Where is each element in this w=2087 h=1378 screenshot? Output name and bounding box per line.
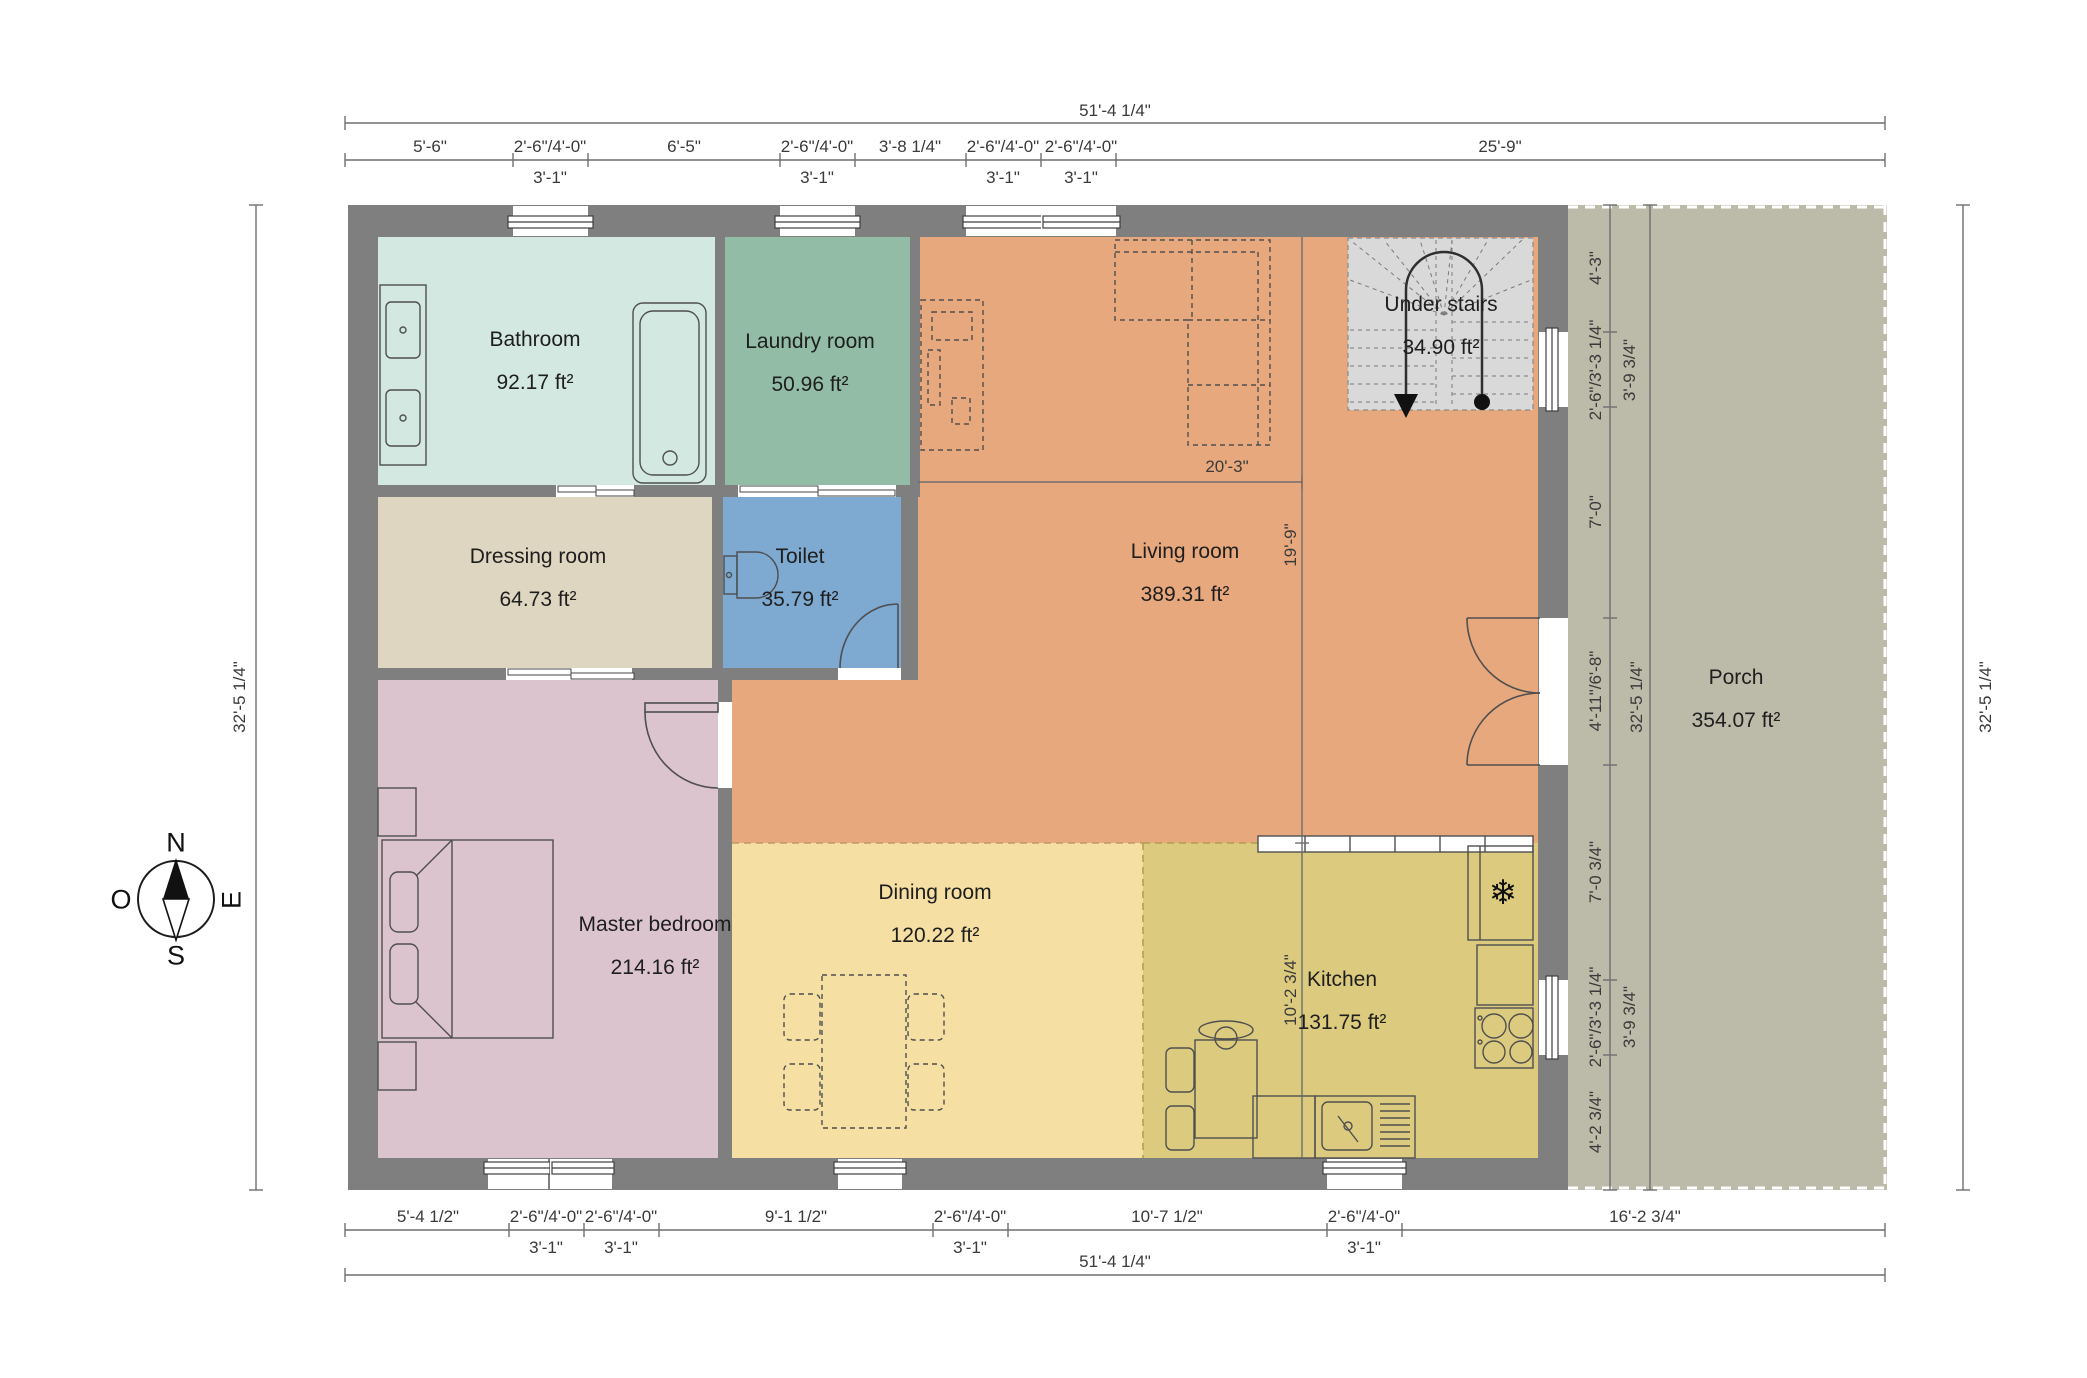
dim-kitchen-depth: 10'-2 3/4" [1281,954,1301,1026]
dim-bottom-seg-4: 2'-6"/4'-0" [934,1207,1006,1227]
compass-west-label: O [110,885,131,916]
window-bathroom [508,206,593,236]
room-label-bathroom: Bathroom92.17 ft² [489,318,580,404]
dim-right-inner-overall: 32'-5 1/4" [1627,661,1647,733]
room-label-dressing: Dressing room64.73 ft² [470,535,607,621]
fridge-snowflake-icon: ❄ [1489,873,1518,913]
room-label-master: Master bedroom214.16 ft² [579,903,732,989]
window-living-2 [1041,206,1120,236]
dim-right-seg-1: 2'-6"/3'-3 1/4" [1586,320,1606,421]
dim-top-seg-0: 5'-6" [413,137,447,157]
window-bedroom-1 [484,1159,550,1189]
dim-top-seg-1: 2'-6"/4'-0" [514,137,586,157]
room-label-understairs: Under stairs34.90 ft² [1384,283,1497,369]
window-dining [834,1159,906,1189]
dim-bottom-seg-1: 2'-6"/4'-0" [510,1207,582,1227]
room-label-laundry: Laundry room50.96 ft² [745,320,875,406]
dim-top-sub-2: 3'-1" [986,168,1020,188]
dim-right-seg-2: 7'-0" [1586,495,1606,529]
room-label-kitchen: Kitchen131.75 ft² [1298,958,1387,1044]
dim-right-sub-1: 3'-9 3/4" [1620,986,1640,1048]
dim-bottom-overall: 51'-4 1/4" [1079,1252,1151,1272]
dim-bottom-seg-2: 2'-6"/4'-0" [585,1207,657,1227]
dim-right-seg-4: 7'-0 3/4" [1586,841,1606,903]
dim-bottom-sub-2: 3'-1" [953,1238,987,1258]
dim-living-depth: 19'-9" [1281,523,1301,566]
dim-top-sub-1: 3'-1" [800,168,834,188]
dim-bottom-sub-0: 3'-1" [529,1238,563,1258]
room-label-porch: Porch354.07 ft² [1692,656,1781,742]
compass-north-label: N [166,828,186,859]
dim-bottom-sub-3: 3'-1" [1347,1238,1381,1258]
window-bedroom-2 [550,1159,614,1189]
dim-top-seg-5: 2'-6"/4'-0" [967,137,1039,157]
dim-top-seg-7: 25'-9" [1478,137,1521,157]
room-label-toilet: Toilet35.79 ft² [761,535,838,621]
dim-top-overall: 51'-4 1/4" [1079,101,1151,121]
window-kitchen-side [1539,976,1568,1059]
dim-top-seg-3: 2'-6"/4'-0" [781,137,853,157]
dim-top-seg-2: 6'-5" [667,137,701,157]
dim-bottom-seg-3: 9'-1 1/2" [765,1207,827,1227]
dim-top-seg-4: 3'-8 1/4" [879,137,941,157]
dim-right-sub-0: 3'-9 3/4" [1620,339,1640,401]
dim-bottom-seg-5: 10'-7 1/2" [1131,1207,1203,1227]
dim-top-sub-0: 3'-1" [533,168,567,188]
dim-top-seg-6: 2'-6"/4'-0" [1045,137,1117,157]
floor-plan: Bathroom92.17 ft² Laundry room50.96 ft² … [0,0,2087,1378]
dim-right-seg-5: 2'-6"/3'-3 1/4" [1586,967,1606,1068]
dim-living-width: 20'-3" [1205,457,1248,477]
window-laundry [775,206,860,236]
dim-bottom-seg-7: 16'-2 3/4" [1609,1207,1681,1227]
dim-bottom-sub-1: 3'-1" [604,1238,638,1258]
dim-bottom-seg-0: 5'-4 1/2" [397,1207,459,1227]
dim-right-outer-overall: 32'-5 1/4" [1976,661,1996,733]
window-living-1 [963,206,1042,236]
dim-right-seg-6: 4'-2 3/4" [1586,1091,1606,1153]
window-stairs [1539,328,1568,411]
dim-right-seg-0: 4'-3" [1586,251,1606,285]
compass-east-label: E [217,891,248,909]
dim-left-overall: 32'-5 1/4" [230,661,250,733]
dim-right-seg-3: 4'-11"/6'-8" [1586,651,1606,732]
dim-top-sub-3: 3'-1" [1064,168,1098,188]
room-label-living: Living room389.31 ft² [1131,530,1240,616]
compass-icon [138,858,214,940]
dim-bottom-seg-6: 2'-6"/4'-0" [1328,1207,1400,1227]
window-kitchen-sink [1323,1159,1406,1189]
room-label-dining: Dining room120.22 ft² [878,871,991,957]
compass-south-label: S [167,941,185,972]
